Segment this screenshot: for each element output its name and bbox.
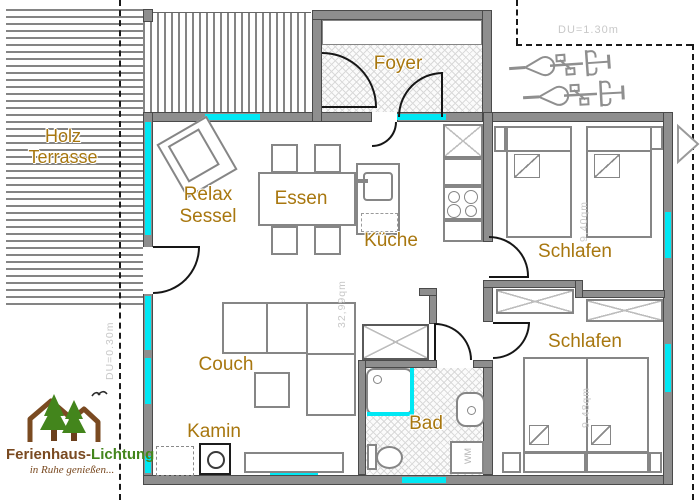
bed-head-line — [588, 150, 650, 152]
wall-kitchen-bedroom1 — [483, 112, 493, 242]
shower-glass-bottom — [367, 412, 414, 416]
window-left-1 — [145, 122, 151, 235]
pillow-fold — [591, 425, 611, 445]
pillow — [586, 452, 649, 473]
room-label-bedroom2: Schlafen — [548, 331, 622, 353]
property-line-top-horizontal — [516, 44, 692, 46]
terrace-post — [143, 9, 153, 22]
kitchen-sink-unit — [356, 163, 400, 235]
terrace-deck-top — [143, 12, 311, 113]
nightstand — [650, 126, 663, 150]
kitchen-cabinet-x — [443, 124, 483, 158]
window-top-living — [205, 114, 260, 120]
foyer-wall-top — [312, 10, 492, 20]
door-arc-kitchen — [372, 122, 397, 147]
dining-chair — [314, 144, 341, 173]
wall-hall-stub-h — [419, 288, 437, 296]
burner — [447, 204, 461, 218]
window-bottom-bath — [402, 477, 446, 483]
bird-icon — [92, 392, 107, 396]
bath-sink-drain — [467, 406, 476, 415]
couch-side-section — [306, 302, 356, 416]
wall-bath-left — [358, 360, 366, 475]
foyer-wall-left — [312, 10, 322, 122]
kitchen-fridge — [443, 158, 483, 186]
shower-glass-right — [410, 368, 414, 415]
wardrobe — [586, 299, 663, 322]
logo: Ferienhaus-Lichtung in Ruhe genießen... — [6, 386, 138, 482]
dining-chair — [314, 226, 341, 255]
washing-machine: WM — [450, 441, 484, 474]
nightstand — [494, 126, 506, 152]
pillow-fold — [529, 425, 549, 445]
door-arc-bath — [435, 323, 472, 360]
foyer-wall-right — [482, 10, 492, 122]
room-label-bath: Bad — [409, 413, 443, 435]
dimension-note-left: DU=0.30m — [104, 308, 116, 380]
bed-bench — [502, 452, 521, 473]
room-label-bedroom1: Schlafen — [538, 241, 612, 263]
bath-sink — [456, 392, 485, 427]
logo-graphic — [6, 386, 136, 444]
couch-divider — [266, 303, 268, 353]
coffee-table — [254, 372, 290, 408]
wall-bedroom1-bottom — [483, 280, 583, 288]
sideboard — [244, 452, 344, 473]
door-gap-kitchen — [372, 112, 397, 122]
shower — [366, 368, 413, 415]
wood-storage — [156, 446, 194, 476]
brand-part1: Ferienhaus- — [6, 446, 91, 463]
room-label-kitchen: Küche — [364, 230, 418, 252]
armchair-cushion — [168, 128, 220, 182]
area-label-bedroom1: 9,40qm — [578, 182, 590, 242]
door-arc-bedroom2 — [493, 322, 530, 359]
room-label-fireplace: Kamin — [187, 421, 241, 443]
door-arc-bedroom1 — [489, 236, 529, 276]
room-label-dining: Essen — [275, 188, 328, 210]
foyer-closet — [322, 20, 482, 45]
brand-name: Ferienhaus-Lichtung — [6, 446, 138, 463]
washing-machine-label: WM — [463, 448, 473, 464]
burner — [464, 190, 478, 204]
property-line-top-vertical — [516, 0, 518, 44]
pillow — [523, 452, 586, 473]
room-label-terrace: Holz Terrasse — [28, 126, 97, 168]
kitchen-counter-end — [443, 220, 483, 242]
toilet-bowl — [376, 446, 403, 469]
north-arrow-icon — [676, 122, 700, 166]
bed-single — [586, 126, 652, 238]
fireplace — [199, 443, 231, 475]
couch-divider — [307, 353, 355, 355]
shower-drain — [373, 375, 382, 384]
dining-chair — [271, 144, 298, 173]
bicycles-icon — [495, 48, 665, 120]
wall-step-connector — [575, 280, 583, 298]
window-left-3 — [145, 358, 151, 404]
property-line-right — [692, 44, 694, 500]
brand-part2: Lichtung — [91, 446, 154, 463]
wall-bath-top-left — [358, 360, 437, 368]
wall-right — [663, 112, 673, 485]
area-label-bedroom2: 9,48qm — [580, 368, 592, 428]
kitchen-sink-basin — [363, 172, 393, 201]
pillow — [594, 154, 620, 178]
burner — [465, 205, 477, 217]
window-left-2 — [145, 296, 151, 350]
area-label-living: 32,99qm — [336, 262, 348, 328]
window-right-bedroom1 — [665, 212, 671, 258]
wall-bath-top-right — [473, 360, 493, 368]
floor-plan: DU=1.30m DU=0.30m — [0, 0, 700, 500]
kitchen-faucet — [358, 179, 368, 183]
door-arc-terrace — [153, 247, 200, 294]
door-leaf-bedroom1 — [489, 276, 529, 278]
brand-tagline: in Ruhe genießen... — [6, 464, 138, 476]
pillow — [514, 154, 540, 178]
dining-chair — [271, 226, 298, 255]
room-label-couch: Couch — [199, 354, 254, 376]
dimension-note-top: DU=1.30m — [558, 24, 619, 36]
fir-trees — [40, 394, 86, 441]
wardrobe — [496, 289, 574, 314]
hall-wardrobe — [362, 324, 429, 360]
bed-single — [506, 126, 572, 238]
fireplace-flue — [207, 451, 225, 469]
kitchen-stove — [443, 186, 483, 220]
door-gap-terrace — [143, 247, 153, 294]
room-label-foyer: Foyer — [374, 53, 423, 75]
window-right-bedroom2 — [665, 344, 671, 392]
bed-bench — [649, 452, 662, 473]
room-label-relax: Relax Sessel — [179, 184, 236, 229]
burner — [448, 191, 460, 203]
wall-bedroom2-top — [575, 290, 665, 298]
bed-head-line — [508, 150, 570, 152]
